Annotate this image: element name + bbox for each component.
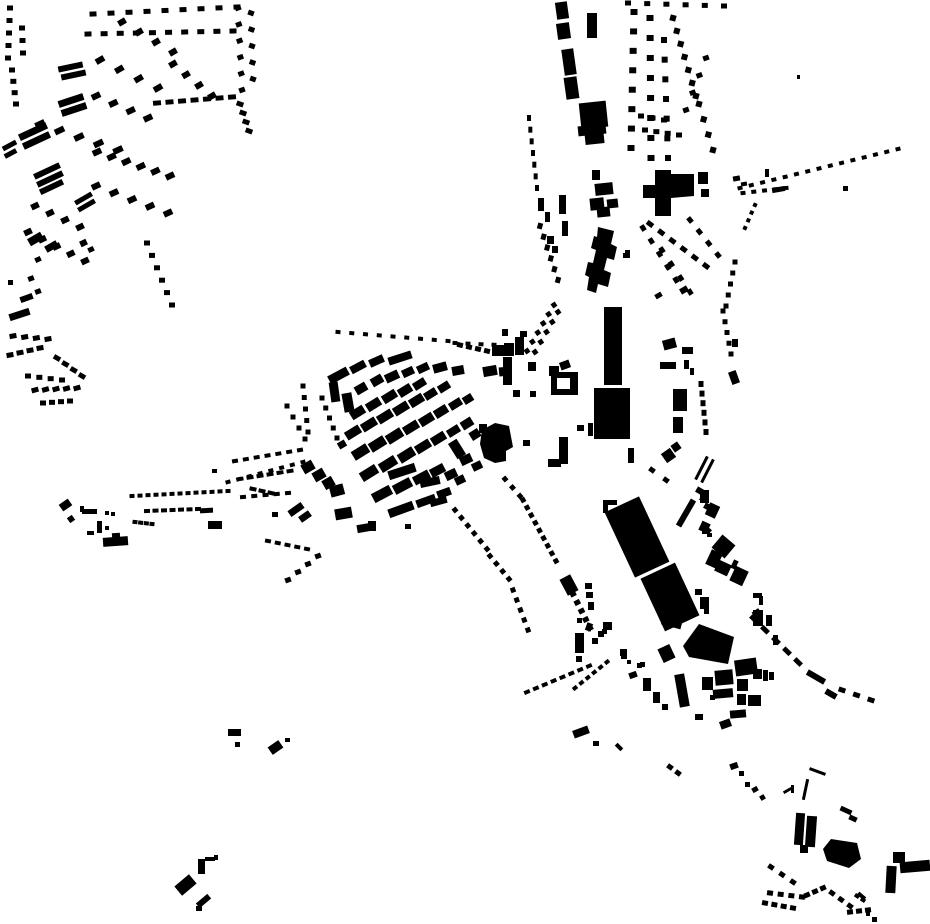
figure-ground-map <box>0 0 930 924</box>
building-footprints-layer <box>0 0 930 924</box>
